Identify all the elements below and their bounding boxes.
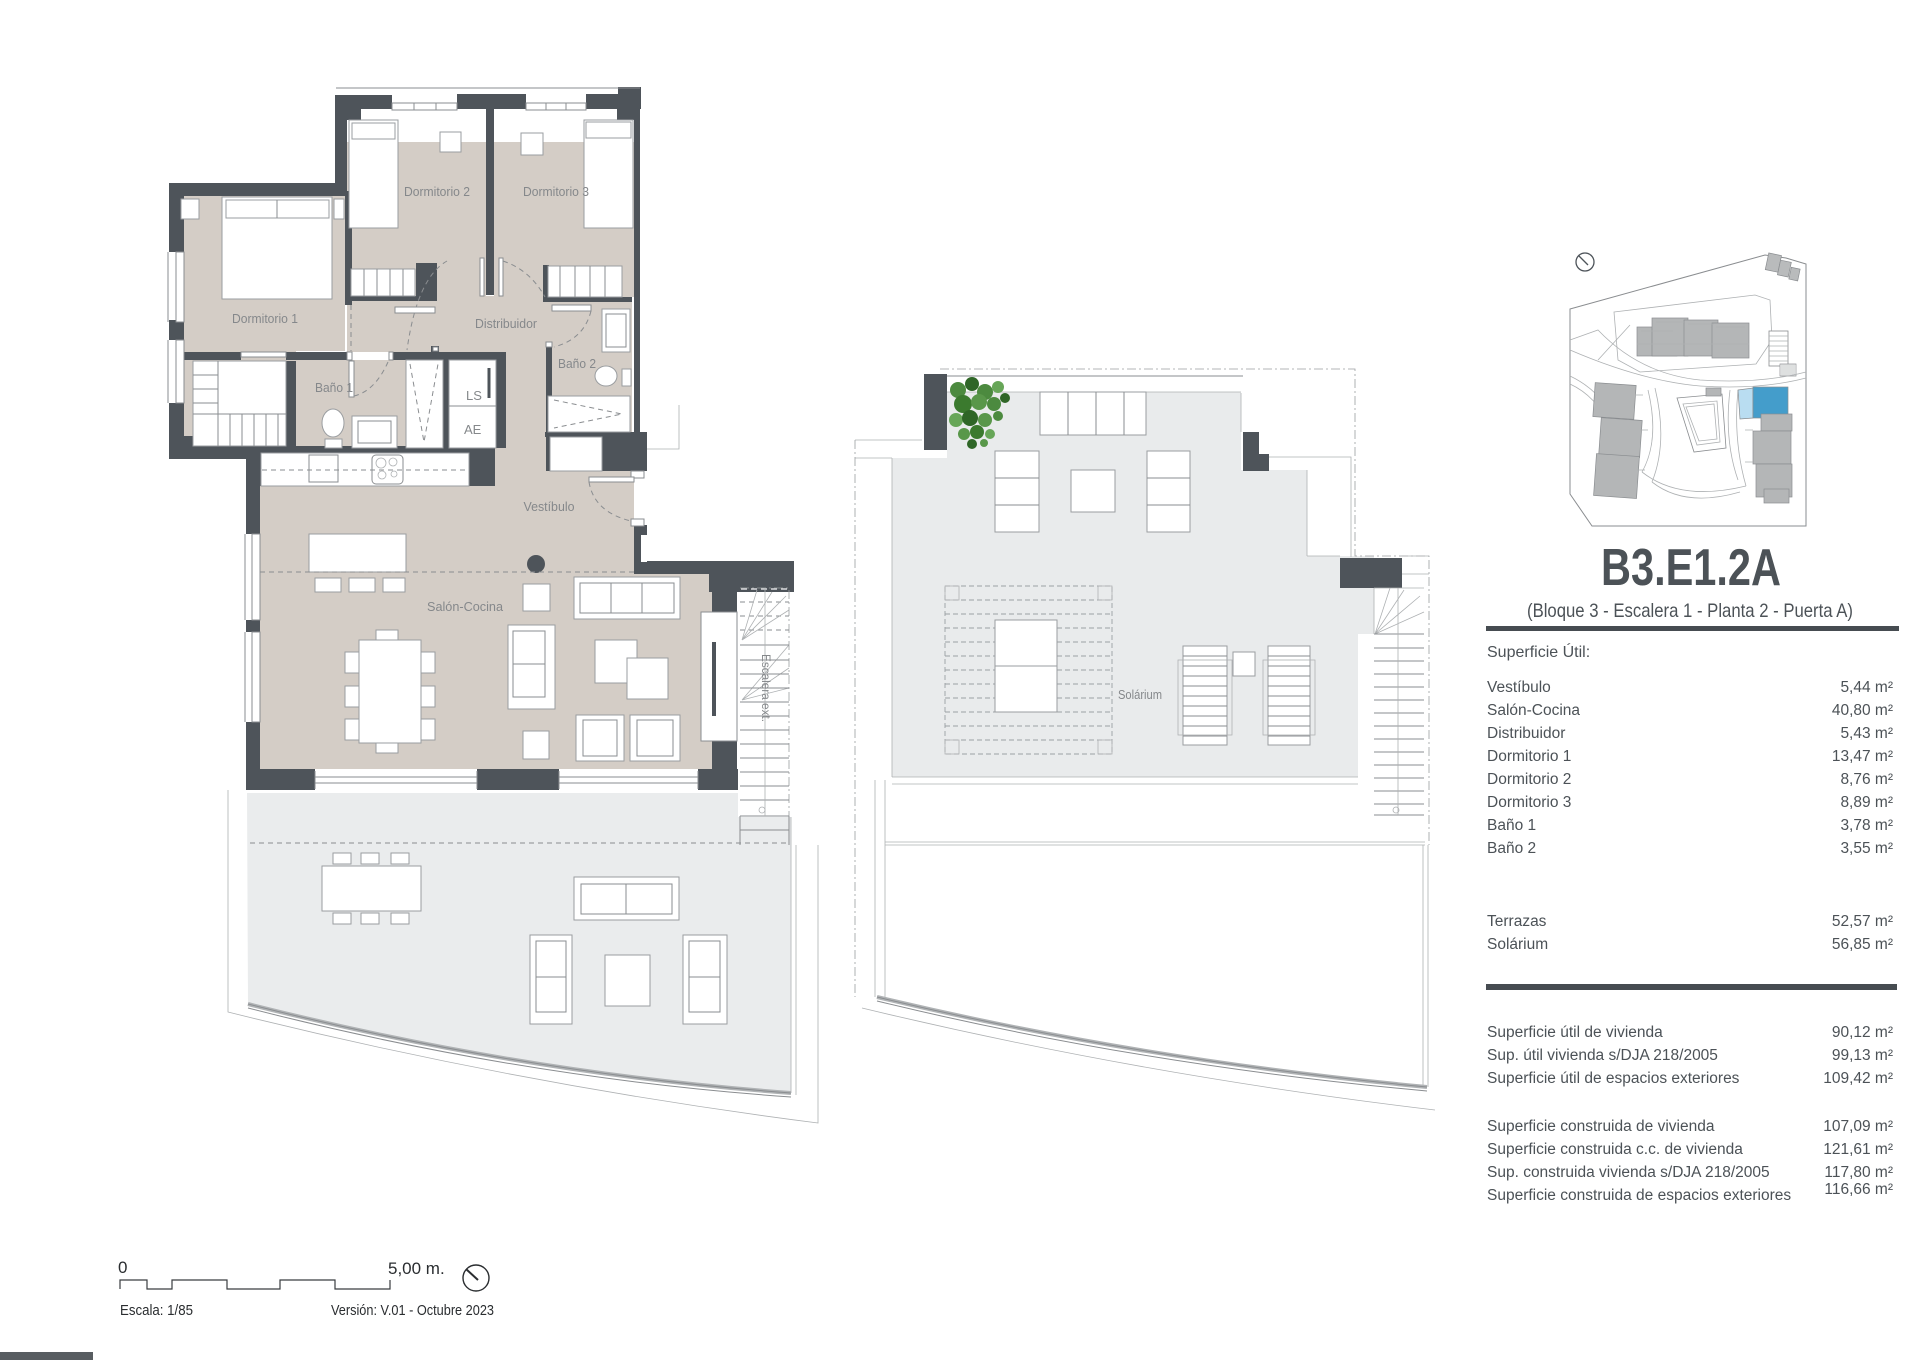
svg-text:56,85 m²: 56,85 m² [1832, 936, 1893, 953]
svg-text:116,66 m²: 116,66 m² [1824, 1181, 1893, 1198]
svg-text:3,55 m²: 3,55 m² [1840, 840, 1893, 857]
svg-text:5,44 m²: 5,44 m² [1840, 679, 1893, 696]
svg-text:Salón-Cocina: Salón-Cocina [1487, 702, 1580, 719]
svg-text:Solárium: Solárium [1487, 936, 1548, 953]
svg-text:Dormitorio 3: Dormitorio 3 [1487, 794, 1571, 811]
svg-text:Escalera ext.: Escalera ext. [759, 654, 773, 722]
svg-text:Superficie construida de espac: Superficie construida de espacios exteri… [1487, 1187, 1791, 1204]
svg-text:Dormitorio 3: Dormitorio 3 [523, 184, 589, 199]
svg-text:Dormitorio 2: Dormitorio 2 [404, 184, 470, 199]
svg-text:121,61 m²: 121,61 m² [1823, 1141, 1893, 1158]
svg-text:Superficie útil de espacios ex: Superficie útil de espacios exteriores [1487, 1070, 1740, 1087]
svg-text:Versión: V.01 - Octubre 2023: Versión: V.01 - Octubre 2023 [331, 1302, 494, 1319]
svg-text:Salón-Cocina: Salón-Cocina [427, 599, 504, 614]
svg-text:Dormitorio 2: Dormitorio 2 [1487, 771, 1571, 788]
svg-text:0: 0 [118, 1258, 127, 1277]
svg-text:5,00 m.: 5,00 m. [388, 1259, 445, 1278]
svg-text:Dormitorio 1: Dormitorio 1 [232, 311, 298, 326]
svg-text:Sup. útil vivienda s/DJA 218/2: Sup. útil vivienda s/DJA 218/2005 [1487, 1047, 1718, 1064]
svg-text:Dormitorio 1: Dormitorio 1 [1487, 748, 1571, 765]
svg-text:8,76 m²: 8,76 m² [1840, 771, 1893, 788]
svg-text:Superficie útil de vivienda: Superficie útil de vivienda [1487, 1024, 1663, 1041]
svg-text:Vestíbulo: Vestíbulo [1487, 679, 1551, 696]
svg-text:Superficie construida c.c. de: Superficie construida c.c. de vivienda [1487, 1141, 1743, 1158]
svg-text:8,89 m²: 8,89 m² [1840, 794, 1893, 811]
svg-text:B3.E1.2A: B3.E1.2A [1601, 539, 1781, 597]
svg-text:Baño 2: Baño 2 [1487, 840, 1536, 857]
svg-text:AE: AE [464, 422, 482, 437]
svg-text:Solárium: Solárium [1118, 687, 1162, 702]
svg-text:Superficie construida de vivie: Superficie construida de vivienda [1487, 1118, 1715, 1135]
svg-text:Baño 1: Baño 1 [1487, 817, 1536, 834]
svg-text:52,57 m²: 52,57 m² [1832, 913, 1893, 930]
svg-text:Superficie Útil:: Superficie Útil: [1487, 642, 1590, 661]
svg-text:Baño 1: Baño 1 [315, 380, 353, 395]
svg-text:Baño 2: Baño 2 [558, 356, 596, 371]
svg-text:99,13 m²: 99,13 m² [1832, 1047, 1893, 1064]
svg-text:90,12 m²: 90,12 m² [1832, 1024, 1893, 1041]
svg-text:Escala: 1/85: Escala: 1/85 [120, 1302, 193, 1319]
svg-text:Sup. construida vivienda s/DJA: Sup. construida vivienda s/DJA 218/2005 [1487, 1164, 1770, 1181]
svg-text:Terrazas: Terrazas [1487, 913, 1547, 930]
svg-text:LS: LS [466, 388, 482, 403]
svg-text:107,09 m²: 107,09 m² [1823, 1118, 1893, 1135]
svg-text:Distribuidor: Distribuidor [475, 316, 538, 331]
svg-text:13,47 m²: 13,47 m² [1832, 748, 1893, 765]
svg-text:5,43 m²: 5,43 m² [1840, 725, 1893, 742]
svg-text:109,42 m²: 109,42 m² [1823, 1070, 1893, 1087]
svg-text:40,80 m²: 40,80 m² [1832, 702, 1893, 719]
svg-text:117,80 m²: 117,80 m² [1824, 1164, 1893, 1181]
svg-text:Distribuidor: Distribuidor [1487, 725, 1565, 742]
svg-text:3,78 m²: 3,78 m² [1840, 817, 1893, 834]
svg-text:(Bloque 3 - Escalera 1 - Plant: (Bloque 3 - Escalera 1 - Planta 2 - Puer… [1527, 600, 1853, 622]
svg-text:Vestíbulo: Vestíbulo [524, 499, 575, 514]
